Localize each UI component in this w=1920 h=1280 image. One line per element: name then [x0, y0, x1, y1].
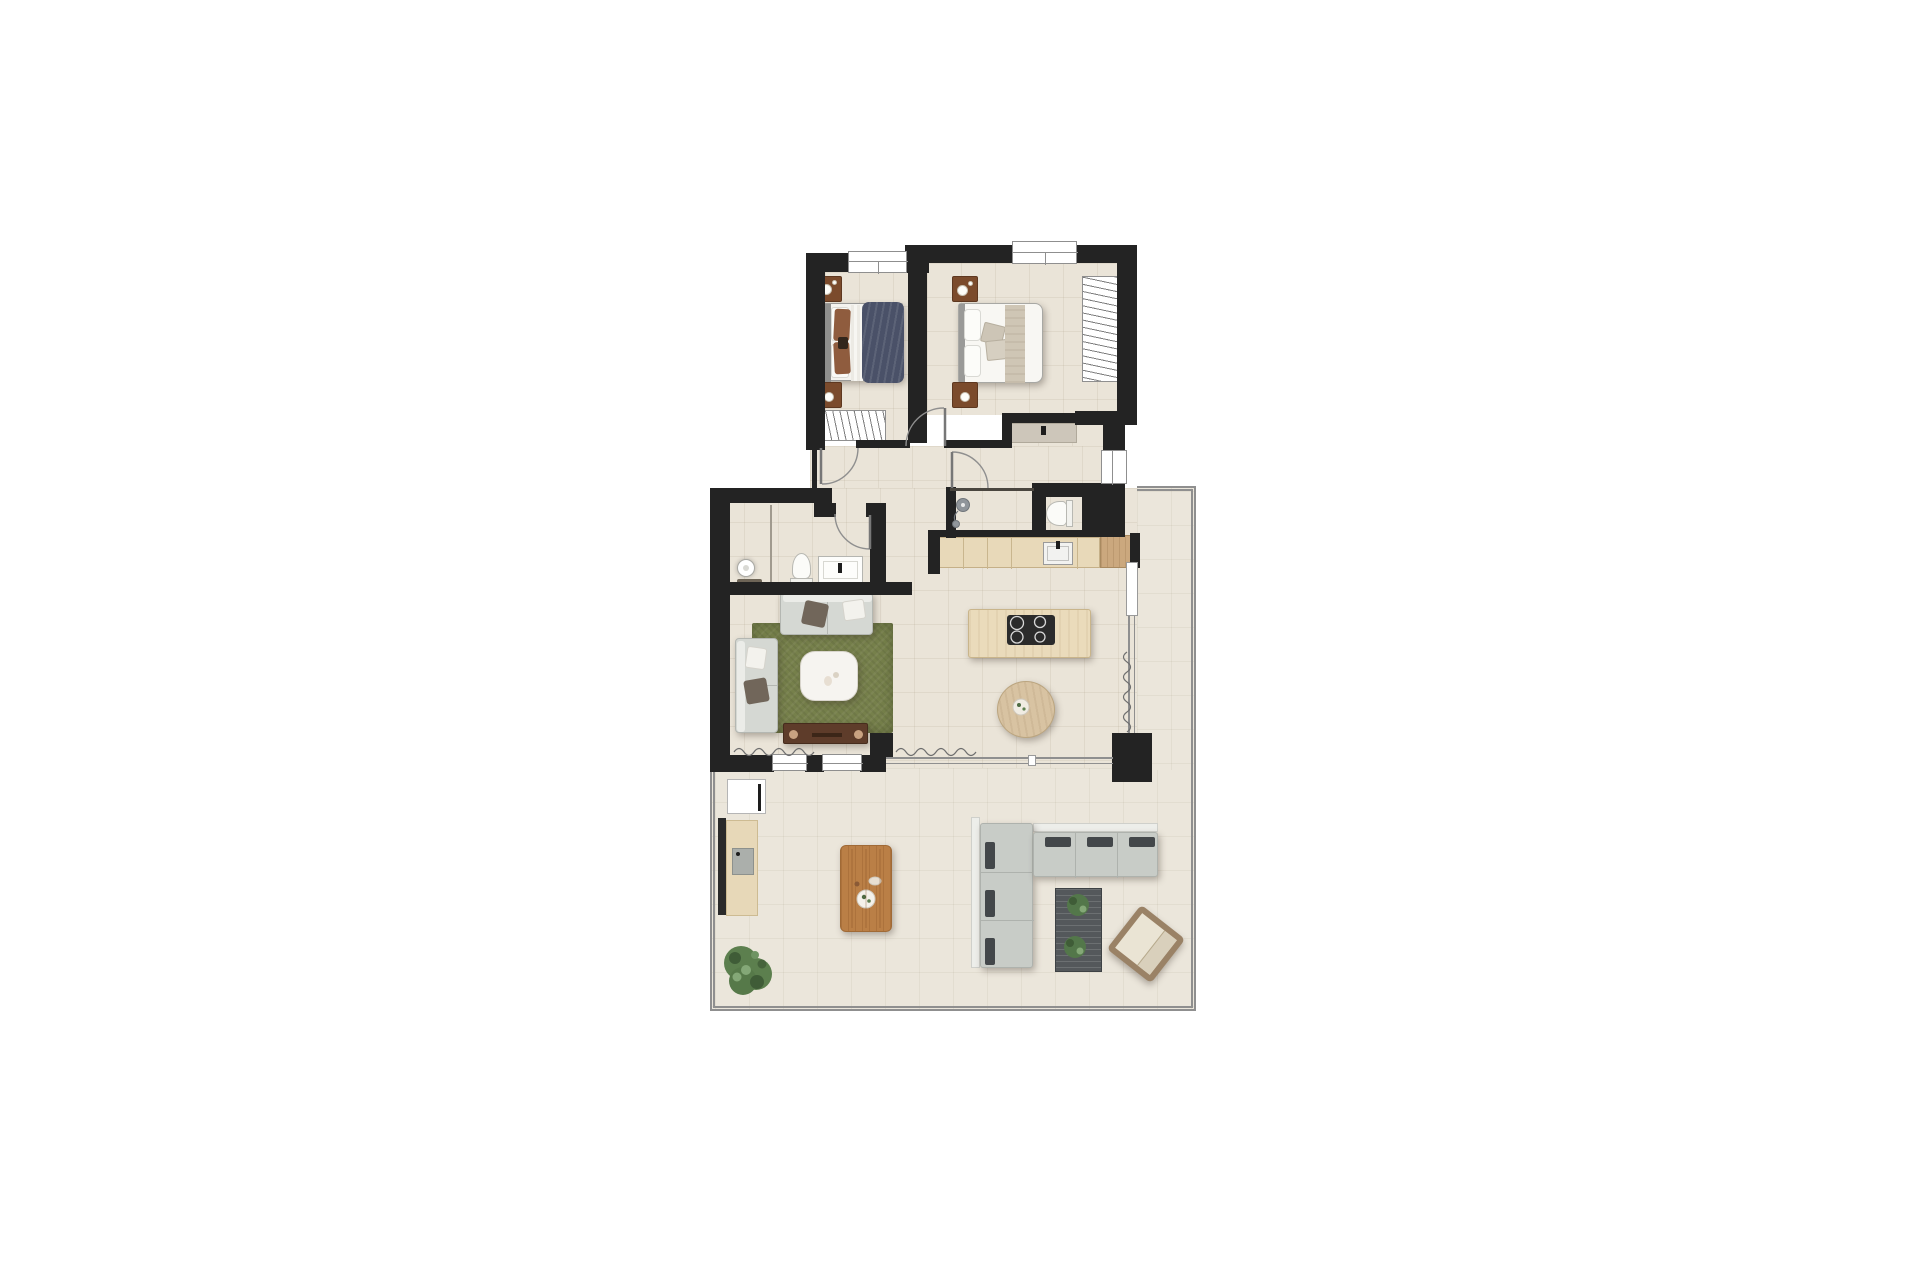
bed-second: [958, 303, 1043, 383]
dark-pillow: [985, 890, 995, 917]
terrace-wall-stub: [718, 818, 726, 915]
cabinet-line: [1011, 538, 1012, 569]
wall: [927, 245, 1014, 263]
wall: [944, 440, 1008, 448]
sofa-pillow-brown: [743, 677, 770, 705]
cabinet-line: [1077, 538, 1078, 569]
glass-wall-bottom: [886, 757, 1113, 764]
cooktop: [1007, 615, 1055, 645]
window-living-right: [822, 754, 862, 771]
wall: [710, 582, 912, 595]
wc-toilet: [1046, 501, 1068, 526]
toilet: [792, 553, 811, 579]
outdoor-sofa-vertical: [980, 823, 1033, 968]
wall: [1112, 733, 1152, 782]
bathroom-partition: [770, 505, 772, 582]
beige-blanket: [1005, 305, 1025, 383]
wall: [870, 733, 893, 757]
wardrobe-primary: [820, 410, 886, 441]
wall: [728, 755, 774, 772]
window-frame-bar: [878, 261, 879, 274]
kitchen-island: [968, 609, 1091, 658]
basin-drain: [743, 565, 749, 571]
sofa-pillow-white: [842, 599, 867, 622]
wall: [860, 755, 886, 772]
hall-sideboard: [1010, 423, 1077, 443]
dark-pillow: [1129, 837, 1155, 847]
table-decor: [833, 672, 839, 678]
cushion-line: [1075, 833, 1076, 878]
dark-pillow: [1087, 837, 1113, 847]
wall: [710, 488, 730, 772]
kitchen-counter: [938, 537, 1100, 568]
nightstand: [952, 276, 978, 302]
nightstand: [952, 382, 978, 408]
outdoor-grill: [732, 848, 754, 875]
wall: [814, 503, 836, 517]
window-bedroom-second: [1012, 241, 1077, 264]
console-knob: [854, 730, 863, 739]
console-detail: [812, 733, 842, 737]
wall: [870, 515, 886, 584]
window-frame-bar: [1112, 451, 1113, 485]
window-frame-bar: [773, 763, 808, 764]
sofa-left: [735, 638, 778, 733]
kitchen-sink: [1043, 542, 1073, 565]
bed-pillow: [964, 309, 981, 341]
window-frame-bar: [823, 763, 863, 764]
lamp: [824, 392, 834, 402]
glass-door-track: [1028, 755, 1036, 766]
sofa-pillow-brown: [801, 600, 829, 628]
wall: [1032, 483, 1046, 537]
wall: [1103, 411, 1125, 452]
wall: [908, 263, 927, 443]
table-decor-vase: [824, 676, 832, 686]
bed-primary: [823, 303, 903, 381]
cushion-line: [1117, 833, 1118, 878]
outdoor-dark-rug: [1055, 888, 1102, 972]
sliding-door-panel: [1126, 562, 1138, 616]
window-frame-bar: [1045, 252, 1046, 265]
sink-faucet: [1056, 541, 1060, 549]
throw-knot: [838, 337, 848, 349]
floor-terrace-bottom: [710, 768, 1196, 1011]
outdoor-counter: [726, 820, 758, 916]
bed-headboard: [824, 304, 831, 382]
wall: [806, 253, 850, 272]
wc-toilet-tank: [1066, 500, 1073, 527]
terrace-storage-box: [727, 779, 766, 814]
console-knob: [789, 730, 798, 739]
outdoor-dining-table: [840, 845, 892, 932]
wardrobe-second: [1082, 276, 1118, 382]
sofa-top: [780, 592, 873, 635]
sideboard-fixture: [1041, 426, 1046, 435]
dark-pillow: [1045, 837, 1071, 847]
wall: [928, 530, 1100, 537]
round-dining-table: [997, 681, 1055, 738]
cushion-line: [981, 920, 1034, 921]
pedestal-basin: [737, 559, 755, 577]
wall-thin: [812, 448, 817, 490]
cushion-line: [981, 872, 1034, 873]
dark-pillow: [985, 842, 995, 869]
coffee-table: [800, 651, 858, 701]
bed-pillow: [964, 345, 981, 377]
dark-pillow: [985, 938, 995, 965]
navy-blanket: [862, 302, 904, 383]
lamp-dot: [832, 280, 837, 285]
cabinet-line: [963, 538, 964, 569]
vanity-basin: [818, 556, 863, 584]
wall: [1046, 483, 1125, 497]
box-detail: [758, 784, 761, 811]
lamp-dot: [968, 281, 973, 286]
outdoor-sofa-back-left: [971, 817, 980, 968]
outdoor-sofa-horizontal: [1033, 832, 1158, 877]
lamp: [957, 285, 968, 296]
wall: [806, 253, 825, 450]
wall: [928, 530, 940, 574]
outdoor-sofa-back-top: [1033, 823, 1158, 832]
wall: [1117, 245, 1137, 425]
wall: [856, 440, 910, 448]
window-entry-right: [1101, 450, 1127, 484]
wall-thin: [950, 488, 1034, 491]
lamp: [960, 392, 970, 402]
floor-terrace-right: [1137, 486, 1196, 770]
vanity-faucet: [838, 563, 842, 573]
window-living-left: [772, 754, 807, 771]
cabinet-line: [987, 538, 988, 569]
tv-console: [783, 723, 868, 744]
window-bedroom-primary: [848, 251, 907, 273]
grill-knob: [736, 852, 740, 856]
sofa-pillow-white: [745, 646, 768, 671]
floor-plan-canvas: [0, 0, 1920, 1280]
